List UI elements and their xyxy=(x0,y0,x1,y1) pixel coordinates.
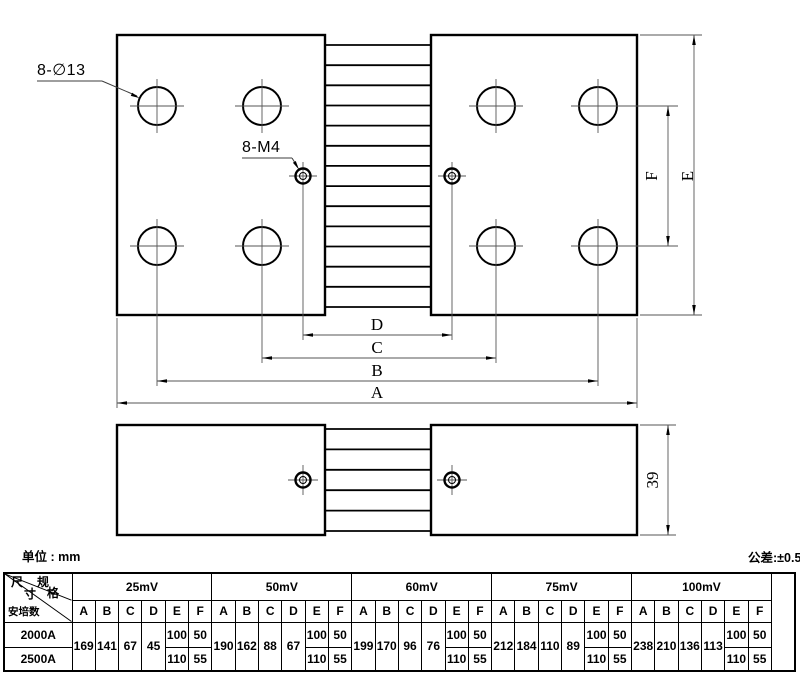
value-cell: 100 xyxy=(725,622,748,647)
col-header: E xyxy=(165,600,188,622)
value-cell: 55 xyxy=(608,647,631,671)
technical-drawing xyxy=(0,0,800,552)
value-cell: 162 xyxy=(235,622,258,671)
row-label: 2500A xyxy=(4,647,72,671)
value-cell: 89 xyxy=(562,622,585,671)
col-header: A xyxy=(492,600,515,622)
value-cell: 96 xyxy=(398,622,421,671)
value-cell: 169 xyxy=(72,622,95,671)
value-cell: 136 xyxy=(678,622,701,671)
value-cell: 141 xyxy=(95,622,118,671)
value-cell: 55 xyxy=(328,647,351,671)
value-cell: 50 xyxy=(328,622,351,647)
corner-spec-char-2: 格 xyxy=(47,587,59,599)
col-header: E xyxy=(725,600,748,622)
value-cell: 110 xyxy=(585,647,608,671)
col-header: F xyxy=(608,600,631,622)
value-cell: 50 xyxy=(608,622,631,647)
col-header: D xyxy=(701,600,724,622)
value-cell: 238 xyxy=(632,622,655,671)
col-header: E xyxy=(585,600,608,622)
side-view-strips xyxy=(325,429,431,531)
col-header: F xyxy=(468,600,491,622)
table-corner-header: 尺 规 寸 格 安培数 xyxy=(4,573,72,622)
col-header: E xyxy=(445,600,468,622)
tolerance-label: 公差:±0.5 xyxy=(748,547,800,566)
col-header: C xyxy=(678,600,701,622)
dim-label-c: C xyxy=(371,339,382,356)
value-cell: 88 xyxy=(259,622,282,671)
row-label: 2000A xyxy=(4,622,72,647)
col-header: C xyxy=(538,600,561,622)
value-cell: 184 xyxy=(515,622,538,671)
col-header: B xyxy=(95,600,118,622)
value-cell: 50 xyxy=(189,622,212,647)
corner-dim-char-2: 寸 xyxy=(24,588,36,600)
col-header: F xyxy=(748,600,771,622)
dimension-lines xyxy=(117,35,702,408)
value-cell: 110 xyxy=(445,647,468,671)
col-header: C xyxy=(119,600,142,622)
value-cell: 50 xyxy=(748,622,771,647)
value-cell: 190 xyxy=(212,622,235,671)
value-cell: 55 xyxy=(468,647,491,671)
group-header: 25mV xyxy=(72,573,212,600)
value-cell: 210 xyxy=(655,622,678,671)
value-cell: 110 xyxy=(165,647,188,671)
value-cell: 100 xyxy=(165,622,188,647)
value-cell: 100 xyxy=(305,622,328,647)
value-cell: 55 xyxy=(748,647,771,671)
value-cell: 67 xyxy=(119,622,142,671)
value-cell: 212 xyxy=(492,622,515,671)
value-cell: 199 xyxy=(352,622,375,671)
group-header: 100mV xyxy=(632,573,772,600)
col-header: A xyxy=(352,600,375,622)
col-header: D xyxy=(422,600,445,622)
value-cell: 67 xyxy=(282,622,305,671)
col-header: C xyxy=(259,600,282,622)
shunt-drawing-page: 8-∅13 8-M4 D C B A F E 39 单位 : mm 公差:±0.… xyxy=(0,0,800,674)
col-header: D xyxy=(282,600,305,622)
small-hole-callout: 8-M4 xyxy=(242,139,280,157)
col-header: C xyxy=(398,600,421,622)
col-header: D xyxy=(562,600,585,622)
col-header: E xyxy=(305,600,328,622)
top-view-resistance-strips xyxy=(325,45,431,307)
col-header: B xyxy=(655,600,678,622)
group-header: 75mV xyxy=(492,573,632,600)
value-cell: 100 xyxy=(445,622,468,647)
group-header: 50mV xyxy=(212,573,352,600)
dim-label-e: E xyxy=(674,161,700,191)
large-hole-callout: 8-∅13 xyxy=(37,60,85,80)
dim-label-b: B xyxy=(371,362,382,379)
col-header: B xyxy=(235,600,258,622)
top-view-blocks xyxy=(117,35,637,315)
dim-label-d: D xyxy=(371,316,383,333)
value-cell: 110 xyxy=(725,647,748,671)
col-header: D xyxy=(142,600,165,622)
group-header: 60mV xyxy=(352,573,492,600)
unit-label: 单位 : mm xyxy=(22,546,80,565)
value-cell: 76 xyxy=(422,622,445,671)
col-header: B xyxy=(375,600,398,622)
value-cell: 110 xyxy=(305,647,328,671)
value-cell: 170 xyxy=(375,622,398,671)
spec-table: 尺 规 寸 格 安培数 25mV 50mV 60mV 75mV 100mV A … xyxy=(3,572,796,672)
dim-label-f: F xyxy=(638,161,664,191)
col-header: F xyxy=(328,600,351,622)
corner-dim-char-1: 尺 xyxy=(11,576,23,588)
col-header: F xyxy=(189,600,212,622)
dim-label-thickness: 39 xyxy=(639,465,665,495)
value-cell: 100 xyxy=(585,622,608,647)
top-view-large-holes xyxy=(138,87,617,265)
value-cell: 113 xyxy=(701,622,724,671)
col-header: A xyxy=(72,600,95,622)
value-cell: 55 xyxy=(189,647,212,671)
side-view-blocks xyxy=(117,425,637,535)
corner-amperage-label: 安培数 xyxy=(8,607,40,618)
value-cell: 45 xyxy=(142,622,165,671)
col-header: B xyxy=(515,600,538,622)
dim-label-a: A xyxy=(371,384,383,401)
value-cell: 110 xyxy=(538,622,561,671)
col-header: A xyxy=(632,600,655,622)
top-view-m4-holes xyxy=(296,169,460,184)
value-cell: 50 xyxy=(468,622,491,647)
col-header: A xyxy=(212,600,235,622)
side-view-m4-holes xyxy=(296,473,460,488)
